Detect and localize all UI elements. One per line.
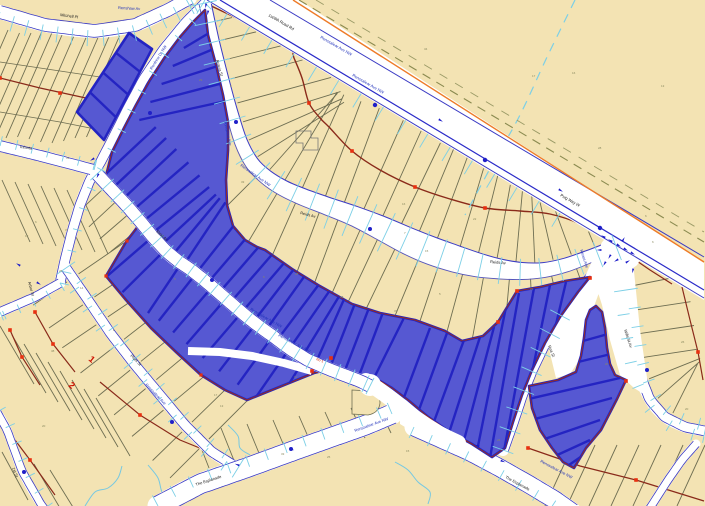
svg-text:33: 33 [241,180,245,184]
svg-text:22: 22 [530,287,534,291]
svg-text:20: 20 [605,362,609,366]
svg-text:12: 12 [25,234,29,238]
svg-text:15: 15 [425,249,429,253]
svg-text:24: 24 [497,438,501,442]
svg-text:14: 14 [80,286,84,290]
svg-text:28: 28 [598,146,602,150]
svg-text:29: 29 [199,78,203,82]
svg-text:16: 16 [402,202,406,206]
svg-text:17: 17 [214,393,218,397]
svg-text:13: 13 [220,404,224,408]
svg-text:18: 18 [340,295,344,299]
svg-text:25: 25 [59,269,63,273]
svg-text:38: 38 [51,349,55,353]
svg-text:33: 33 [394,309,398,313]
svg-text:15: 15 [406,449,410,453]
svg-text:13: 13 [661,84,665,88]
svg-text:33: 33 [66,156,70,160]
svg-text:26: 26 [681,340,685,344]
svg-text:22: 22 [473,217,477,221]
svg-text:34: 34 [424,47,428,51]
svg-text:33: 33 [281,452,285,456]
svg-text:20: 20 [685,407,689,411]
svg-text:25: 25 [327,455,331,459]
svg-text:20: 20 [42,424,46,428]
svg-text:16: 16 [572,71,576,75]
svg-text:11: 11 [294,375,297,379]
svg-text:17: 17 [532,74,536,78]
svg-text:37: 37 [65,228,69,232]
svg-text:38: 38 [295,272,299,276]
